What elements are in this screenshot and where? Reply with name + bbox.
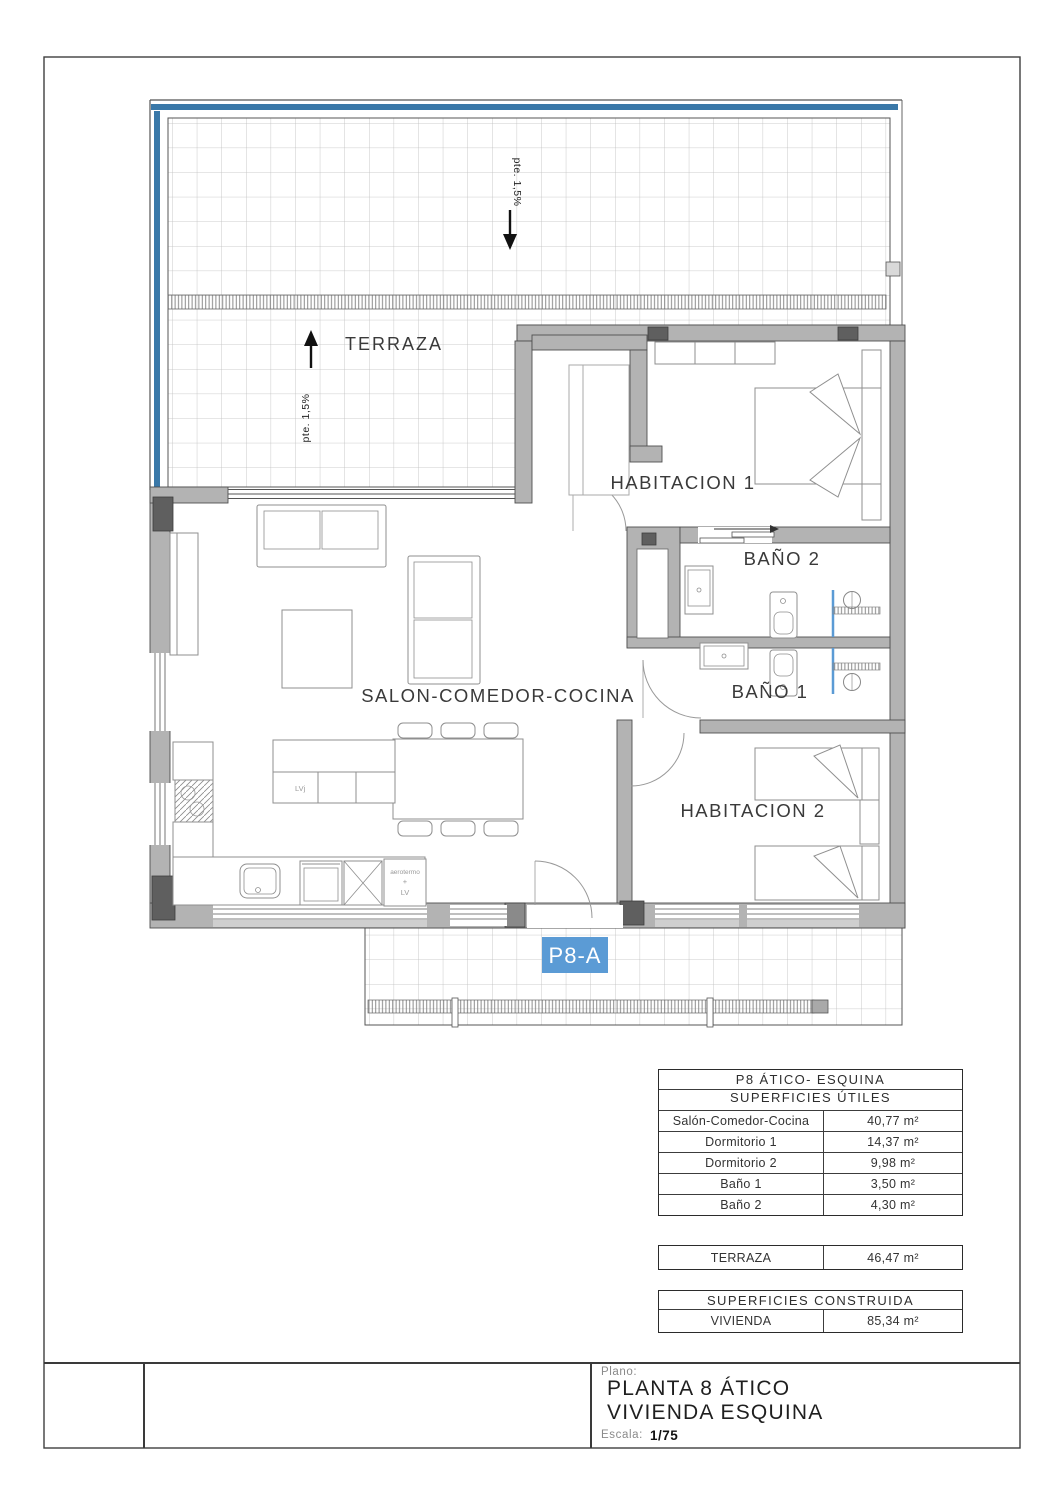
chair [441,723,475,738]
table-row: VIVIENDA 85,34 m² [659,1309,962,1332]
row-label: Dormitorio 2 [659,1153,824,1173]
drawing-sheet: TERRAZA HABITACION 1 BAÑO 2 BAÑO 1 HABIT… [0,0,1060,1500]
table-row: Dormitorio 2 9,98 m² [659,1152,962,1173]
wall-right [890,341,905,928]
titleblock-divider-h [44,1362,1020,1364]
terrace-label: TERRAZA [345,334,443,354]
aerotermo-label-3: LV [401,888,410,897]
room-label-bedroom1: HABITACION 1 [610,472,755,493]
built-areas-table: SUPERFICIES CONSTRUIDA VIVIENDA 85,34 m² [658,1290,963,1333]
door-bath1 [643,660,701,718]
escala-value: 1/75 [650,1428,678,1443]
row-value: 46,47 m² [824,1246,962,1269]
terrace-right-channel [890,100,902,325]
kitchen-cabinet [173,822,213,857]
furniture-bath2 [685,566,880,638]
room-label-bath1: BAÑO 1 [732,681,809,702]
aerotermo-label-2: + [403,877,408,886]
row-label: TERRAZA [659,1246,824,1269]
row-value: 4,30 m² [824,1195,962,1215]
terrace-blue-edge-left [154,111,160,490]
terrace-area-table: TERRAZA 46,47 m² [658,1245,963,1270]
wall-bath2-bath1 [627,637,890,648]
table-row: TERRAZA 46,47 m² [659,1246,962,1269]
row-value: 9,98 m² [824,1153,962,1173]
room-label-bath2: BAÑO 2 [744,548,821,569]
room-label-living: SALON-COMEDOR-COCINA [361,685,635,706]
chair [484,723,518,738]
row-label: Baño 2 [659,1195,824,1215]
wall-hab1-closet [630,350,647,450]
table-subtitle: SUPERFICIES ÚTILES [659,1090,962,1110]
titleblock-divider-v1 [143,1362,145,1448]
wall-bath1-hab2 [700,720,905,733]
dining-table [393,739,523,819]
furniture-bedroom1 [655,342,881,520]
floor-plan-svg: TERRAZA HABITACION 1 BAÑO 2 BAÑO 1 HABIT… [0,0,1060,1500]
sheet-title-line2: VIVIENDA ESQUINA [607,1401,823,1425]
opening-entry [527,905,623,928]
wall-hall-top [532,335,647,350]
coffee-table [282,610,352,688]
window-salon-north [228,490,515,499]
table-row: Dormitorio 1 14,37 m² [659,1131,962,1152]
furniture-kitchen [173,740,426,906]
row-value: 14,37 m² [824,1132,962,1152]
slope-label-top: pte. 1,5% [511,158,523,207]
chair [398,821,432,836]
row-value: 85,34 m² [824,1310,962,1332]
row-label: Baño 1 [659,1174,824,1194]
terrace-bottom-drain-strip [368,1000,814,1013]
furniture-bedroom2 [755,745,879,900]
useful-areas-table: P8 ÁTICO- ESQUINA SUPERFICIES ÚTILES Sal… [658,1069,963,1216]
row-value: 40,77 m² [824,1111,962,1131]
aerotermo-label-1: aerotermo [390,869,420,876]
headboard-nightstands [862,350,881,520]
unit-badge-label: P8-A [549,943,602,968]
kitchen-cabinet [173,742,213,780]
shaft-duct [637,549,668,638]
chair [441,821,475,836]
room-label-bedroom2: HABITACION 2 [680,800,825,821]
table-title: SUPERFICIES CONSTRUIDA [659,1291,962,1309]
table-row: Salón-Comedor-Cocina 40,77 m² [659,1110,962,1131]
wall-salon-hab2 [617,720,632,903]
chair [398,723,432,738]
row-label: Salón-Comedor-Cocina [659,1111,824,1131]
table-row: Baño 2 4,30 m² [659,1194,962,1215]
terrace-bottom [365,928,902,1027]
island-lvj-label: LVj [295,784,306,793]
sheet-title-line1: PLANTA 8 ÁTICO [607,1377,790,1401]
sideboard [170,533,198,655]
row-label: VIVIENDA [659,1310,824,1332]
escala-label: Escala: [601,1429,643,1441]
row-value: 3,50 m² [824,1174,962,1194]
titleblock-divider-v2 [590,1362,592,1448]
closet [655,342,775,364]
chair [484,821,518,836]
row-label: Dormitorio 1 [659,1132,824,1152]
terrace-drain-strip [168,295,886,309]
wall-vestibule [515,341,532,503]
nightstand [860,800,879,844]
slope-label-left: pte. 1,5% [300,394,312,443]
table-title: P8 ÁTICO- ESQUINA [659,1070,962,1089]
door-hab2 [631,733,684,786]
terrace-blue-edge-top [151,104,898,110]
table-row: Baño 1 3,50 m² [659,1173,962,1194]
